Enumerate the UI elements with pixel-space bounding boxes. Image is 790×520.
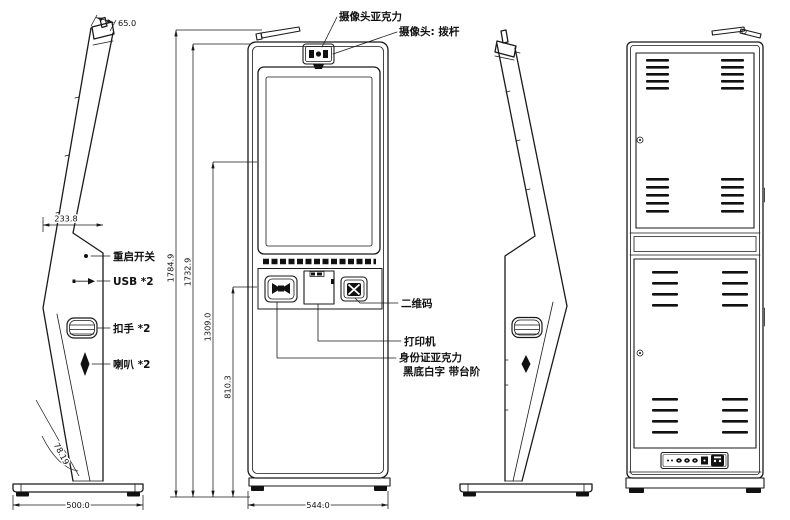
handle-icon (67, 318, 97, 338)
svg-text:233.8: 233.8 (54, 214, 77, 224)
foot-pad (127, 492, 140, 497)
qr-label: 二维码 (401, 297, 433, 310)
upper-door (636, 53, 754, 228)
printer-slot (304, 271, 334, 304)
side-front-edge (497, 44, 535, 481)
dim-base-depth: 500.0 (13, 495, 143, 510)
svg-text:1309.0: 1309.0 (203, 313, 213, 342)
vent-group (722, 398, 748, 434)
top-cap (92, 22, 114, 39)
foot-pad (251, 486, 264, 491)
drawing-canvas: 重启开关 USB *2 扣手 *2 喇叭 *2 65.0 233.8 (0, 0, 790, 520)
dim-upper-body-depth: 233.8 (43, 214, 103, 233)
camera-lens-icon (316, 51, 321, 56)
front-view: 摄像头亚克力 摄像头: 拨杆 (248, 10, 481, 510)
speaker-label: 喇叭 *2 (113, 358, 150, 371)
handle-icon (512, 318, 542, 338)
vent-group (652, 271, 678, 307)
foot-pad (629, 488, 644, 493)
usb-icon (73, 278, 96, 285)
restart-switch-icon (84, 254, 88, 258)
dim-tilt-angle: 78.19 (36, 400, 79, 476)
foot-pad (576, 492, 589, 497)
plinth (249, 478, 390, 486)
panel-ticks (506, 52, 530, 190)
handle-label: 扣手 *2 (113, 322, 150, 335)
camera-lever-back (712, 27, 761, 38)
foot-pad (746, 488, 761, 493)
svg-text:1784.9: 1784.9 (166, 254, 176, 283)
speaker-icon (522, 355, 531, 373)
svg-text:810.3: 810.3 (223, 375, 233, 398)
lower-door (634, 259, 756, 448)
camera-acrylic-label: 摄像头亚克力 (339, 10, 402, 23)
vent-group (646, 59, 669, 90)
back-view (626, 27, 765, 493)
side-view-left: 重启开关 USB *2 扣手 *2 喇叭 *2 65.0 233.8 (13, 15, 155, 510)
base-foot (13, 484, 143, 492)
middle-band-inner (634, 237, 756, 252)
camera-lever-label: 摄像头: 拨杆 (399, 25, 460, 38)
vent-group (646, 178, 669, 213)
side-seam-line (513, 302, 553, 481)
side-view-right (460, 30, 592, 497)
id-card-reader (265, 276, 297, 302)
dim-cabinet-width: 544.0 (248, 491, 388, 510)
screen (266, 77, 372, 246)
foot-caps (468, 484, 584, 492)
dim-console-height: 810.3 (223, 287, 258, 497)
speaker-icon (81, 352, 90, 376)
svg-text:500.0: 500.0 (66, 500, 89, 510)
power-inlet-icon (711, 455, 724, 467)
foot-pad (463, 492, 476, 497)
vent-group (721, 178, 744, 213)
camera-module (303, 44, 334, 69)
screen-bezel (258, 67, 380, 254)
cap-seam (93, 41, 113, 45)
foot-pad (374, 486, 387, 491)
lock-icon (637, 137, 643, 143)
dim-screen-center-height: 1309.0 (203, 162, 258, 497)
camera-lever-front (256, 27, 300, 40)
svg-text:65.0: 65.0 (118, 18, 136, 28)
svg-text:544.0: 544.0 (306, 500, 329, 510)
id-card-note: 黑底白字 带台阶 (403, 365, 481, 378)
foot-caps (21, 484, 135, 492)
usb-label: USB *2 (113, 276, 154, 288)
side-back-edge (515, 48, 567, 481)
camera-nub (501, 30, 508, 43)
restart-switch-label: 重启开关 (113, 250, 155, 263)
kiosk-engineering-drawing: 重启开关 USB *2 扣手 *2 喇叭 *2 65.0 233.8 (0, 0, 790, 520)
id-card-label: 身份证亚克力 (399, 351, 462, 364)
cabinet-outline (627, 42, 763, 478)
vent-group (722, 271, 748, 307)
side-back-edge (43, 28, 91, 481)
vent-group (652, 398, 678, 434)
dim-cabinet-height: 1732.9 (183, 44, 251, 497)
plinth (626, 478, 764, 488)
connector-panel (661, 453, 728, 469)
base-foot (460, 484, 592, 492)
leader-id-card (277, 302, 396, 358)
svg-text:1732.9: 1732.9 (183, 258, 193, 287)
lock-icon (637, 350, 643, 356)
foot-pad (16, 492, 29, 497)
vent-group (721, 59, 744, 90)
qr-scanner (341, 277, 367, 301)
printer-label: 打印机 (404, 335, 436, 348)
